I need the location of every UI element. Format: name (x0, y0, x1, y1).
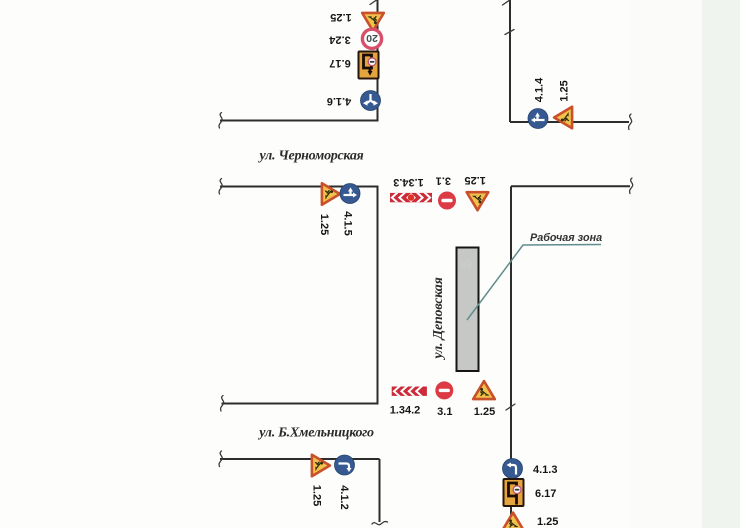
svg-text:1.25: 1.25 (474, 406, 495, 418)
svg-text:ул. Б.Хмельницкого: ул. Б.Хмельницкого (257, 426, 374, 441)
svg-text:4.1.3: 4.1.3 (533, 464, 557, 476)
svg-text:4.1.2: 4.1.2 (338, 485, 350, 509)
svg-text:4.1.5: 4.1.5 (341, 211, 353, 235)
svg-text:1.34.2: 1.34.2 (390, 404, 421, 416)
svg-text:1.25: 1.25 (559, 80, 571, 101)
svg-text:99: 99 (460, 259, 472, 271)
svg-text:1.25: 1.25 (310, 485, 322, 506)
svg-text:1.25: 1.25 (464, 174, 485, 186)
svg-text:6.17: 6.17 (329, 57, 350, 69)
svg-text:4.1.6: 4.1.6 (327, 95, 351, 107)
svg-text:ул. Деповская: ул. Деповская (431, 277, 446, 360)
svg-text:1.25: 1.25 (537, 516, 558, 528)
svg-text:3.1: 3.1 (436, 175, 451, 187)
svg-text:4.1.4: 4.1.4 (534, 77, 546, 102)
svg-text:Рабочая зона: Рабочая зона (530, 232, 602, 244)
svg-text:ул. Черноморская: ул. Черноморская (258, 149, 364, 164)
svg-text:1.25: 1.25 (318, 214, 330, 235)
svg-text:3.1: 3.1 (437, 406, 452, 418)
svg-text:1.25: 1.25 (330, 11, 351, 23)
svg-text:3.24: 3.24 (328, 33, 350, 45)
svg-text:6.17: 6.17 (535, 488, 556, 500)
svg-text:1.34.3: 1.34.3 (393, 176, 424, 188)
